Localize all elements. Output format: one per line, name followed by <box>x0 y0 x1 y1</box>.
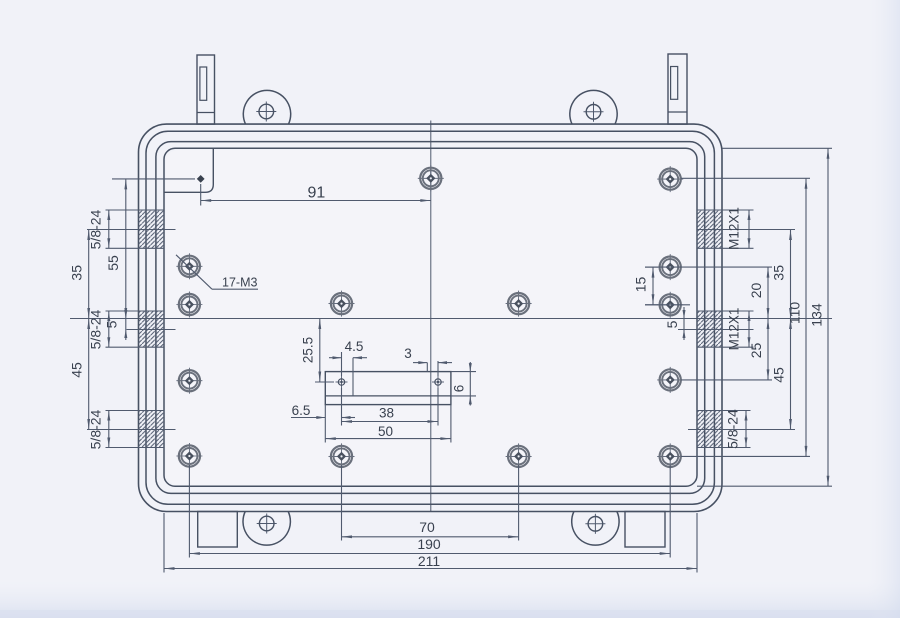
svg-text:91: 91 <box>308 184 326 201</box>
svg-text:55: 55 <box>105 255 121 271</box>
svg-text:70: 70 <box>419 519 435 535</box>
svg-text:6.5: 6.5 <box>292 403 311 418</box>
svg-text:35: 35 <box>69 265 85 281</box>
svg-text:25: 25 <box>748 343 764 359</box>
svg-text:45: 45 <box>771 367 787 383</box>
svg-text:25.5: 25.5 <box>301 337 316 363</box>
svg-text:M12X1: M12X1 <box>727 308 742 351</box>
svg-text:45: 45 <box>69 362 85 378</box>
svg-text:5/8-24: 5/8-24 <box>88 309 104 349</box>
svg-text:3: 3 <box>404 346 412 361</box>
svg-text:20: 20 <box>748 283 764 299</box>
svg-text:5/8-24: 5/8-24 <box>725 409 741 449</box>
svg-text:35: 35 <box>771 265 787 281</box>
svg-text:5/8-24: 5/8-24 <box>88 209 104 249</box>
svg-text:190: 190 <box>417 536 441 552</box>
svg-text:4.5: 4.5 <box>345 339 364 354</box>
svg-text:110: 110 <box>787 302 803 325</box>
svg-text:17-M3: 17-M3 <box>222 276 257 290</box>
svg-text:5: 5 <box>104 320 120 328</box>
svg-text:15: 15 <box>633 277 649 293</box>
svg-text:5: 5 <box>664 320 680 328</box>
svg-text:38: 38 <box>379 406 394 421</box>
svg-text:50: 50 <box>378 424 393 439</box>
svg-text:M12X1: M12X1 <box>727 207 742 250</box>
svg-text:6: 6 <box>452 385 467 393</box>
svg-text:5/8-24: 5/8-24 <box>88 409 104 449</box>
svg-text:211: 211 <box>418 553 441 569</box>
svg-text:134: 134 <box>809 303 825 327</box>
